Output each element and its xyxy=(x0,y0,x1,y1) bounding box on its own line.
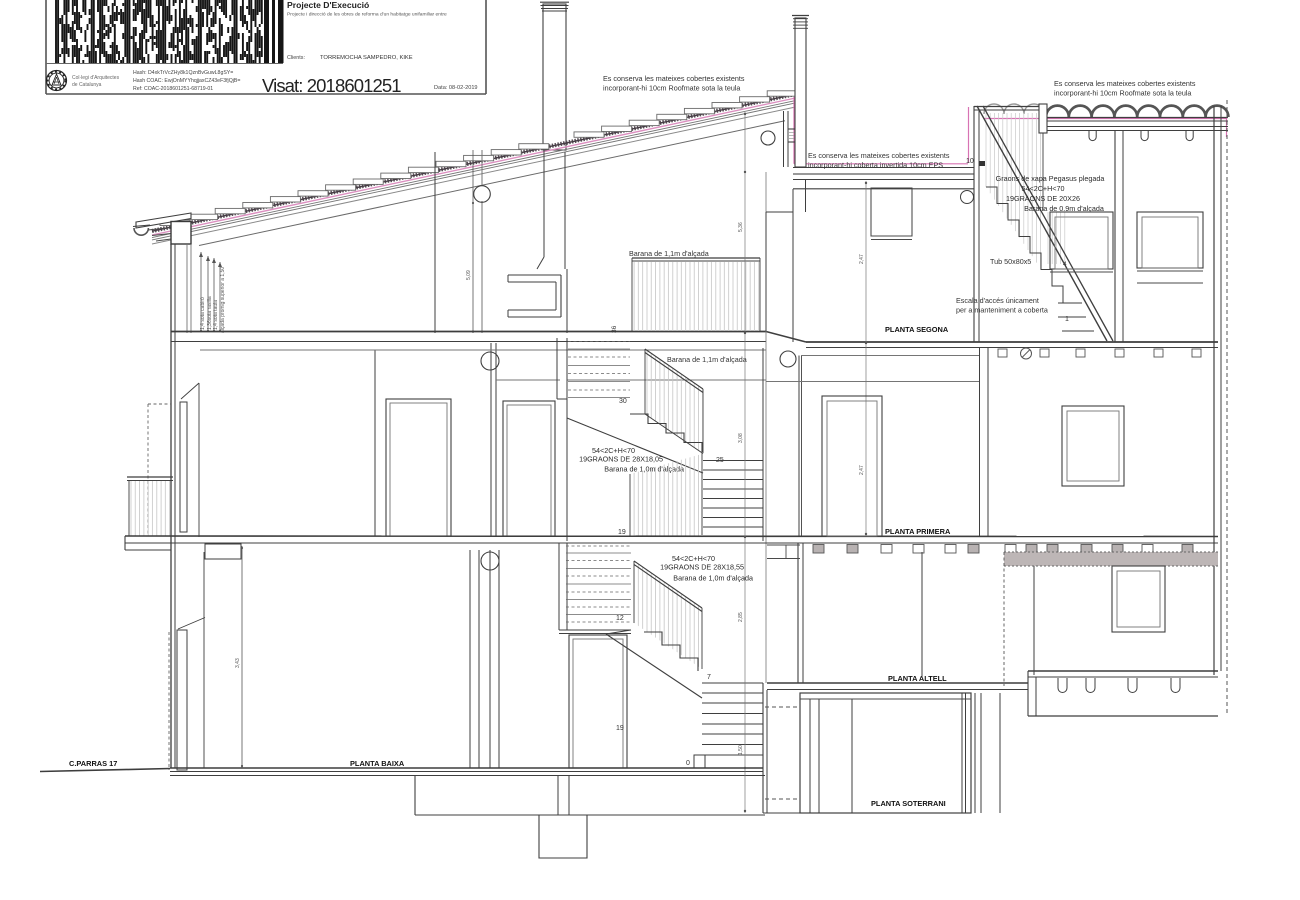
svg-text:Barana de 1,1m d'alçada: Barana de 1,1m d'alçada xyxy=(629,249,709,258)
svg-text:3,08: 3,08 xyxy=(738,433,744,443)
svg-text:19GRAONS DE 20X26: 19GRAONS DE 20X26 xyxy=(1006,194,1080,203)
svg-text:36: 36 xyxy=(611,325,618,333)
svg-text:Data: 08-02-2019: Data: 08-02-2019 xyxy=(434,85,478,91)
svg-text:19: 19 xyxy=(616,725,624,732)
svg-text:per a manteniment a coberta: per a manteniment a coberta xyxy=(956,306,1048,315)
svg-text:PLANTA SOTERRANI: PLANTA SOTERRANI xyxy=(871,799,946,808)
svg-text:1,4 sota taula: 1,4 sota taula xyxy=(213,300,219,330)
svg-text:Hash COAC: EwjOnMYYhqjjaxCZ43e: Hash COAC: EwjOnMYYhqjjaxCZ43eF3fjQjB= xyxy=(133,78,240,84)
svg-text:Projecte i direcció de les obr: Projecte i direcció de les obres de refo… xyxy=(287,12,447,18)
svg-text:Visat: 2018601251: Visat: 2018601251 xyxy=(262,75,401,96)
svg-text:incorporant-hi 10cm Roofmate s: incorporant-hi 10cm Roofmate sota la teu… xyxy=(1054,89,1191,98)
svg-text:Es conserva les mateixes cober: Es conserva les mateixes cobertes existe… xyxy=(808,151,950,160)
svg-text:Barana de 1,0m d'alçada: Barana de 1,0m d'alçada xyxy=(673,574,753,583)
svg-text:TORREMOCHA SAMPEDRO, KIKE: TORREMOCHA SAMPEDRO, KIKE xyxy=(320,55,413,61)
svg-text:alçada promig superior a 1,50: alçada promig superior a 1,50 xyxy=(220,267,226,333)
svg-text:Es conserva les mateixes cober: Es conserva les mateixes cobertes existe… xyxy=(1054,79,1196,88)
svg-text:incorporant-hi 10cm Roofmate s: incorporant-hi 10cm Roofmate sota la teu… xyxy=(603,84,740,93)
svg-text:Barana de 1,1m d'alçada: Barana de 1,1m d'alçada xyxy=(667,355,747,364)
svg-text:C.PARRAS 17: C.PARRAS 17 xyxy=(69,759,117,768)
svg-text:Col·legi d'Arquitectes: Col·legi d'Arquitectes xyxy=(72,75,120,81)
svg-text:54<2C+H<70: 54<2C+H<70 xyxy=(1022,184,1065,193)
svg-text:1: 1 xyxy=(1065,316,1069,323)
svg-text:3,43: 3,43 xyxy=(235,658,241,668)
svg-text:Escala d'accés únicament: Escala d'accés únicament xyxy=(956,296,1039,305)
svg-text:2,85: 2,85 xyxy=(738,612,744,622)
svg-text:2,47: 2,47 xyxy=(859,254,865,264)
svg-text:10: 10 xyxy=(966,158,974,165)
svg-text:Es conserva les mateixes cober: Es conserva les mateixes cobertes existe… xyxy=(603,74,745,83)
svg-text:Ref: COAC-2018601251-68719-01: Ref: COAC-2018601251-68719-01 xyxy=(133,86,213,92)
svg-text:12: 12 xyxy=(616,615,624,622)
svg-text:1,50: 1,50 xyxy=(738,745,744,755)
svg-text:19: 19 xyxy=(618,529,626,536)
svg-text:PLANTA PRIMERA: PLANTA PRIMERA xyxy=(885,527,951,536)
svg-text:PLANTA ALTELL: PLANTA ALTELL xyxy=(888,674,947,683)
svg-text:Projecte D'Execució: Projecte D'Execució xyxy=(287,0,369,10)
svg-text:Tub 50x80x5: Tub 50x80x5 xyxy=(990,257,1031,266)
svg-text:Graons de xapa Pegasus plegada: Graons de xapa Pegasus plegada xyxy=(996,174,1105,183)
svg-text:PLANTA SEGONA: PLANTA SEGONA xyxy=(885,325,949,334)
svg-text:Clients:: Clients: xyxy=(287,55,305,61)
svg-text:1,4 sota cabiró: 1,4 sota cabiró xyxy=(200,297,206,330)
svg-text:19GRAONS DE 28X18,55: 19GRAONS DE 28X18,55 xyxy=(660,563,744,572)
svg-text:2,47: 2,47 xyxy=(859,465,865,475)
svg-text:de Catalunya: de Catalunya xyxy=(72,82,102,88)
svg-text:4: 4 xyxy=(1063,261,1067,268)
svg-text:7: 7 xyxy=(707,674,711,681)
svg-text:19GRAONS DE 28X18,05: 19GRAONS DE 28X18,05 xyxy=(579,455,663,464)
svg-text:PLANTA BAIXA: PLANTA BAIXA xyxy=(350,759,405,768)
svg-text:Hash: D4xkTrVcZHy8k1QznBvGuwL8: Hash: D4xkTrVcZHy8k1QznBvGuwL8gSY= xyxy=(133,70,233,76)
svg-text:0: 0 xyxy=(686,760,690,767)
svg-text:30: 30 xyxy=(619,398,627,405)
svg-text:5,09: 5,09 xyxy=(466,270,472,280)
svg-text:incorporant-hi coberta inverti: incorporant-hi coberta invertida 10cm EP… xyxy=(808,161,943,170)
svg-text:5,36: 5,36 xyxy=(738,222,744,232)
